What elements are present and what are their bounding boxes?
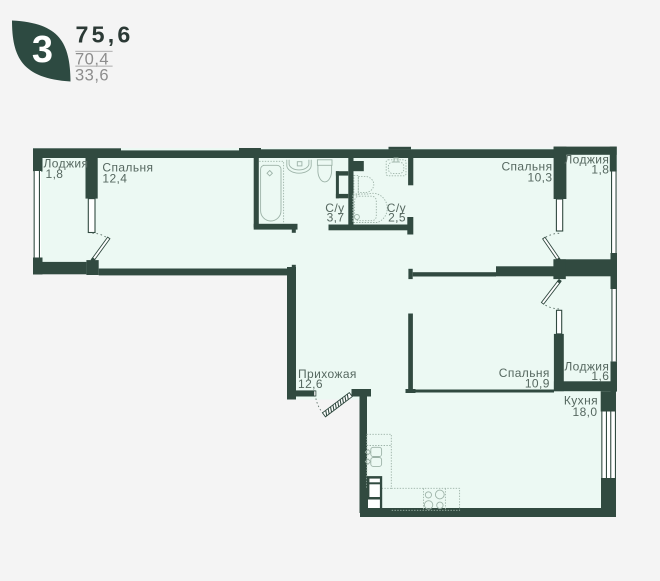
- svg-text:2,5: 2,5: [388, 210, 406, 224]
- svg-text:18,0: 18,0: [573, 405, 598, 419]
- svg-text:10,9: 10,9: [525, 376, 550, 390]
- svg-text:1,8: 1,8: [46, 167, 64, 181]
- svg-text:10,3: 10,3: [528, 170, 553, 184]
- svg-text:12,4: 12,4: [102, 171, 127, 185]
- svg-text:12,6: 12,6: [298, 377, 323, 391]
- svg-text:75,6: 75,6: [76, 21, 134, 47]
- svg-text:33,6: 33,6: [75, 66, 109, 84]
- svg-text:3: 3: [32, 29, 53, 71]
- svg-text:1,6: 1,6: [591, 369, 609, 383]
- svg-text:1,8: 1,8: [591, 163, 609, 177]
- svg-text:3,7: 3,7: [327, 210, 345, 224]
